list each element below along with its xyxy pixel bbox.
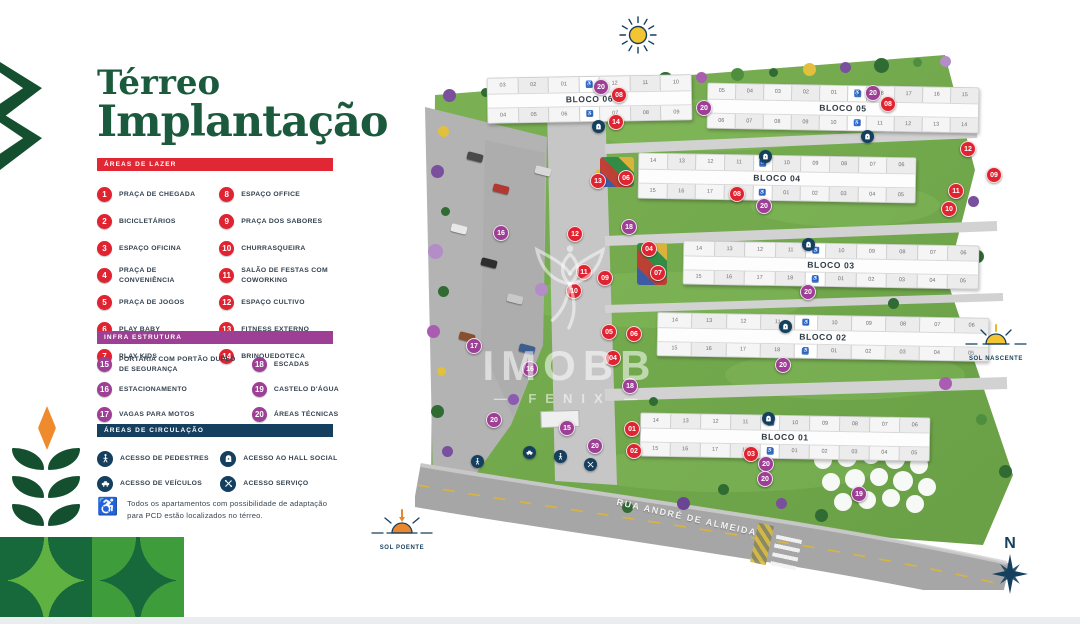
bottom-strip	[0, 617, 1080, 624]
unit-cell: 14	[658, 313, 692, 327]
compass-rose-icon	[990, 552, 1030, 596]
hall-icon	[779, 320, 792, 333]
block-name: BLOCO 01	[761, 432, 808, 443]
building-block: 14131211♿1009080706BLOCO 0115161718♿0102…	[640, 412, 931, 461]
legend-item-label: ESTACIONAMENTO	[119, 385, 187, 394]
legend-item-label: PRAÇA DE JOGOS	[119, 298, 185, 307]
wheelchair-icon: ♿	[766, 447, 773, 454]
map-marker: 20	[758, 456, 774, 472]
unit-cell: 04	[920, 346, 954, 360]
legend-item-label: ESPAÇO OFICINA	[119, 244, 181, 253]
block-name: BLOCO 02	[799, 332, 846, 343]
legend-item-label: ÁREAS TÉCNICAS	[274, 410, 339, 419]
unit-cell: 03	[840, 445, 870, 459]
unit-cell: 10	[773, 156, 802, 171]
unit-cell: 02	[856, 273, 887, 287]
map-marker: 19	[851, 486, 867, 502]
title-line2: Implantação	[97, 101, 388, 145]
accessible-unit-cell: ♿	[580, 106, 601, 121]
hall-icon	[220, 451, 236, 467]
compass-north-label: N	[988, 536, 1032, 552]
wheelchair-icon: ♿	[803, 319, 810, 326]
unit-cell: 16	[714, 270, 745, 284]
unit-cell: 13	[668, 154, 697, 169]
unit-cell: 11	[731, 415, 761, 429]
map-marker: 20	[775, 357, 791, 373]
unit-cell: 09	[792, 115, 820, 130]
legend-item-label: ACESSO DE VEÍCULOS	[120, 479, 202, 488]
map-marker: 20	[756, 198, 772, 214]
unit-cell: 05	[948, 275, 978, 289]
unit-cell: 15	[641, 442, 671, 456]
legend-number-badge: 8	[219, 187, 234, 202]
unit-cell: 03	[488, 78, 519, 93]
map-marker: 10	[566, 283, 582, 299]
map-marker: 20	[486, 412, 502, 428]
hall-icon	[762, 412, 775, 425]
unit-cell: 04	[870, 446, 900, 460]
block-name: BLOCO 05	[819, 103, 866, 114]
legend-item: ACESSO DE PEDESTRES	[97, 446, 210, 471]
unit-cell: 13	[692, 314, 726, 328]
wheelchair-icon: ♿	[97, 498, 118, 515]
unit-cell: 11	[630, 76, 661, 91]
unit-cell: 16	[667, 184, 696, 199]
legend-item-label: ACESSO AO HALL SOCIAL	[243, 454, 337, 463]
unit-cell: 01	[820, 86, 848, 101]
unit-cell: 07	[921, 318, 955, 332]
unit-cell: 05	[708, 84, 736, 99]
pedestrian-icon	[97, 451, 113, 467]
map-marker: 20	[865, 85, 881, 101]
unit-cell: 02	[518, 78, 549, 93]
map-marker: 08	[729, 186, 745, 202]
legend-item: 19CASTELO D'ÁGUA	[252, 377, 339, 402]
legend-number-badge: 1	[97, 187, 112, 202]
unit-cell: 03	[830, 186, 859, 201]
unit-cell: 16	[671, 443, 701, 457]
sol-nascente: SOL NASCENTE	[960, 323, 1032, 362]
map-marker: 10	[941, 201, 957, 217]
unit-cell: 05	[900, 447, 929, 461]
unit-cell: 11	[866, 116, 894, 131]
pedestrian-icon	[471, 455, 484, 468]
unit-cell: 09	[801, 156, 830, 171]
legend-number-badge: 3	[97, 241, 112, 256]
building-block: 14131211♿1009080706BLOCO 0415161718♿0102…	[638, 153, 917, 204]
legend-item-label: CASTELO D'ÁGUA	[274, 385, 339, 394]
unit-cell: 16	[692, 342, 726, 356]
map-marker: 12	[567, 226, 583, 242]
sol-poente: SOL POENTE	[366, 508, 438, 551]
unit-cell: 06	[887, 158, 915, 173]
map-marker: 20	[593, 79, 609, 95]
sol-poente-label: SOL POENTE	[366, 545, 438, 551]
legend-number-badge: 20	[252, 407, 267, 422]
unit-cell: 07	[736, 114, 764, 129]
site-plan-map: RUA ANDRÉ DE ALMEIDA 030201♿121110BLOCO …	[415, 45, 1045, 590]
unit-cell: 15	[639, 183, 668, 198]
page-title: Térreo Implantação	[97, 66, 388, 145]
legend-item: ACESSO AO HALL SOCIAL	[220, 446, 339, 471]
map-marker: 20	[696, 100, 712, 116]
building-block: 030201♿121110BLOCO 06040506♿070809	[487, 74, 693, 124]
hall-icon	[802, 238, 815, 251]
legend-number-badge: 15	[97, 357, 112, 372]
unit-cell: 02	[852, 345, 886, 359]
map-marker: 20	[587, 438, 603, 454]
unit-cell: 06	[949, 246, 979, 260]
unit-cell: 13	[923, 117, 951, 132]
map-marker: 14	[608, 114, 624, 130]
unit-cell: 01	[817, 344, 851, 358]
unit-cell: 13	[671, 414, 701, 428]
map-marker: 08	[611, 87, 627, 103]
legend-item: ACESSO DE VEÍCULOS	[97, 471, 210, 496]
unit-cell: 01	[549, 77, 580, 92]
legend-item: ACESSO SERVIÇO	[220, 471, 339, 496]
service-icon	[220, 476, 236, 492]
map-marker: 08	[880, 96, 896, 112]
accessible-unit-cell: ♿	[795, 344, 818, 358]
legend-item: 11SALÃO DE FESTAS COM COWORKING	[219, 262, 339, 289]
sunrise-icon	[964, 323, 1028, 349]
legend-item: 8ESPAÇO OFFICE	[219, 181, 339, 208]
unit-cell: 07	[918, 246, 949, 260]
map-marker: 09	[597, 270, 613, 286]
legend-header-infra: INFRA ESTRUTURA	[97, 331, 333, 344]
legend-item: 5PRAÇA DE JOGOS	[97, 289, 209, 316]
legend-item: 10CHURRASQUEIRA	[219, 235, 339, 262]
pcd-note: ♿ Todos os apartamentos com possibilidad…	[97, 498, 345, 522]
implantacao-brochure-page: { "title": {"line1": "Térreo", "line2": …	[0, 0, 1080, 624]
legend-item-label: PORTARIA COM PORTÃO DUPLO DE SEGURANÇA	[119, 355, 242, 373]
unit-cell: 04	[918, 274, 949, 288]
legend-item: 3ESPAÇO OFICINA	[97, 235, 209, 262]
unit-cell: 12	[701, 415, 731, 429]
map-marker: 05	[601, 324, 617, 340]
unit-cell: 09	[661, 105, 691, 120]
pedestrian-icon	[554, 450, 567, 463]
wheelchair-icon: ♿	[854, 90, 861, 97]
unit-cell: 12	[745, 243, 776, 257]
map-marker: 03	[743, 446, 759, 462]
map-marker: 16	[493, 225, 509, 241]
map-marker: 15	[559, 420, 575, 436]
unit-cell: 04	[858, 187, 887, 202]
title-line1: Térreo	[97, 66, 388, 101]
sun-icon	[615, 12, 661, 63]
unit-cell: 12	[727, 314, 761, 328]
map-marker: 12	[960, 141, 976, 157]
legend-item: 18ESCADAS	[252, 352, 339, 377]
map-marker: 11	[576, 264, 592, 280]
map-marker: 20	[757, 471, 773, 487]
unit-cell: 17	[726, 343, 760, 357]
unit-cell: 01	[772, 185, 801, 200]
sol-nascente-label: SOL NASCENTE	[960, 356, 1032, 362]
unit-cell: 02	[801, 186, 830, 201]
legend-item-label: BICICLETÁRIOS	[119, 217, 176, 226]
map-marker: 09	[986, 167, 1002, 183]
block-name: BLOCO 06	[566, 94, 613, 105]
legend-number-badge: 2	[97, 214, 112, 229]
unit-cell: 03	[887, 273, 918, 287]
unit-cell: 15	[684, 270, 715, 284]
unit-cell: 06	[549, 107, 580, 122]
map-marker: 17	[466, 338, 482, 354]
legend-number-badge: 9	[219, 214, 234, 229]
unit-cell: 10	[820, 115, 848, 130]
unit-cell: 04	[488, 108, 519, 123]
legend-item-label: PRAÇA DE CHEGADA	[119, 190, 195, 199]
map-marker: 02	[626, 443, 642, 459]
hall-icon	[759, 150, 772, 163]
unit-cell: 08	[888, 245, 919, 259]
legend-item-label: ESPAÇO CULTIVO	[241, 298, 305, 307]
unit-cell: 09	[857, 244, 888, 258]
legend-item-label: ESCADAS	[274, 360, 309, 369]
service-icon	[584, 458, 597, 471]
unit-cell: 01	[780, 444, 810, 458]
unit-cell: 10	[781, 416, 811, 430]
legend-item-label: CHURRASQUEIRA	[241, 244, 305, 253]
unit-cell: 18	[775, 272, 806, 286]
unit-cell: 11	[725, 155, 754, 170]
legend-item-label: VAGAS PARA MOTOS	[119, 410, 195, 419]
vehicle-icon	[523, 446, 536, 459]
legend-item: 9PRAÇA DOS SABORES	[219, 208, 339, 235]
unit-cell: 17	[745, 271, 776, 285]
wheelchair-icon: ♿	[586, 81, 593, 88]
unit-cell: 08	[840, 417, 870, 431]
unit-cell: 07	[859, 157, 888, 172]
unit-cell: 03	[886, 346, 920, 360]
sunset-icon	[370, 508, 434, 538]
plant-decoration	[12, 404, 82, 530]
unit-cell: 15	[951, 88, 978, 103]
legend-item-label: PRAÇA DE CONVENIÊNCIA	[119, 266, 209, 284]
pcd-note-text: Todos os apartamentos com possibilidade …	[127, 498, 345, 522]
map-marker: 18	[621, 219, 637, 235]
wheelchair-icon: ♿	[802, 347, 809, 354]
map-marker: 07	[650, 265, 666, 281]
unit-cell: 02	[792, 85, 820, 100]
map-marker: 20	[800, 284, 816, 300]
unit-cell: 13	[715, 242, 746, 256]
unit-cell: 01	[826, 272, 857, 286]
legend-list-circulacao: ACESSO DE PEDESTRESACESSO DE VEÍCULOSACE…	[97, 446, 339, 496]
unit-cell: 02	[810, 445, 840, 459]
unit-cell: 06	[900, 418, 929, 432]
legend-item: 12ESPAÇO CULTIVO	[219, 289, 339, 316]
unit-cell: 08	[631, 105, 662, 120]
map-marker: 06	[618, 170, 634, 186]
legend-list-infra: 15PORTARIA COM PORTÃO DUPLO DE SEGURANÇA…	[97, 352, 339, 427]
legend-item-label: ACESSO DE PEDESTRES	[120, 454, 209, 463]
legend-number-badge: 19	[252, 382, 267, 397]
unit-cell: 17	[696, 184, 725, 199]
unit-cell: 09	[852, 317, 886, 331]
building-block: 0504030201♿18171615BLOCO 050607080910♿11…	[707, 83, 980, 134]
unit-cell: 10	[818, 316, 852, 330]
map-marker: 06	[626, 326, 642, 342]
unit-cell: 04	[736, 84, 764, 99]
legend-item-label: SALÃO DE FESTAS COM COWORKING	[241, 266, 339, 284]
wheelchair-icon: ♿	[853, 119, 860, 126]
hall-icon	[861, 130, 874, 143]
legend-item: 2BICICLETÁRIOS	[97, 208, 209, 235]
vehicle-icon	[97, 476, 113, 492]
unit-cell: 10	[826, 244, 857, 258]
accessible-unit-cell: ♿	[848, 116, 867, 131]
building-block: 14131211♿1009080706BLOCO 0315161718♿0102…	[683, 240, 980, 289]
legend-item-label: PRAÇA DOS SABORES	[241, 217, 322, 226]
unit-cell: 09	[810, 416, 840, 430]
unit-cell: 15	[658, 342, 692, 356]
legend-number-badge: 5	[97, 295, 112, 310]
block-name: BLOCO 03	[807, 260, 854, 271]
hall-icon	[592, 120, 605, 133]
map-marker: 13	[590, 173, 606, 189]
unit-cell: 12	[894, 116, 922, 131]
unit-cell: 08	[830, 157, 859, 172]
wheelchair-icon: ♿	[586, 110, 593, 117]
block-name: BLOCO 04	[753, 173, 800, 184]
legend-header-lazer: ÁREAS DE LAZER	[97, 158, 333, 171]
legend-item: 16ESTACIONAMENTO	[97, 377, 242, 402]
petal-pattern-decoration	[0, 537, 184, 624]
legend-item: 15PORTARIA COM PORTÃO DUPLO DE SEGURANÇA	[97, 352, 242, 377]
unit-cell: 18	[760, 343, 794, 357]
unit-cell: 08	[764, 114, 792, 129]
unit-cell: 17	[700, 443, 730, 457]
unit-cell: 08	[886, 317, 920, 331]
wheelchair-icon: ♿	[759, 189, 766, 196]
unit-cell: 12	[696, 155, 725, 170]
legend-item: 4PRAÇA DE CONVENIÊNCIA	[97, 262, 209, 289]
map-marker: 16	[522, 361, 538, 377]
corner-leaf-decoration	[0, 62, 42, 120]
building-block: 14131211♿1009080706BLOCO 0215161718♿0102…	[657, 312, 990, 362]
map-marker: 04	[605, 350, 621, 366]
legend-number-badge: 10	[219, 241, 234, 256]
unit-cell: 17	[895, 87, 923, 102]
unit-cell: 06	[708, 113, 736, 128]
compass: N	[988, 536, 1032, 601]
legend-header-circulacao: ÁREAS DE CIRCULAÇÃO	[97, 424, 333, 437]
wheelchair-icon: ♿	[812, 275, 819, 282]
map-marker: 04	[641, 241, 657, 257]
map-marker: 11	[948, 183, 964, 199]
unit-cell: 16	[923, 87, 951, 102]
corner-leaf-decoration	[0, 112, 42, 170]
legend-number-badge: 16	[97, 382, 112, 397]
unit-cell: 14	[951, 117, 978, 132]
unit-cell: 14	[641, 413, 671, 427]
tree-dots	[415, 45, 428, 58]
block-row: 040506♿070809	[488, 105, 691, 123]
unit-cell: 03	[764, 85, 792, 100]
unit-cell: 05	[887, 187, 915, 202]
legend-item-label: ESPAÇO OFFICE	[241, 190, 300, 199]
accessible-unit-cell: ♿	[795, 316, 818, 330]
map-marker: 18	[622, 378, 638, 394]
legend-number-badge: 11	[219, 268, 234, 283]
unit-cell: 10	[661, 75, 691, 90]
map-marker: 01	[624, 421, 640, 437]
legend-number-badge: 12	[219, 295, 234, 310]
unit-cell: 14	[639, 154, 668, 169]
unit-cell: 05	[519, 107, 550, 122]
legend-number-badge: 17	[97, 407, 112, 422]
unit-cell: 14	[684, 241, 715, 255]
legend-item-label: ACESSO SERVIÇO	[243, 479, 308, 488]
legend-item: 1PRAÇA DE CHEGADA	[97, 181, 209, 208]
unit-cell: 07	[870, 417, 900, 431]
legend-number-badge: 4	[97, 268, 112, 283]
legend-number-badge: 18	[252, 357, 267, 372]
